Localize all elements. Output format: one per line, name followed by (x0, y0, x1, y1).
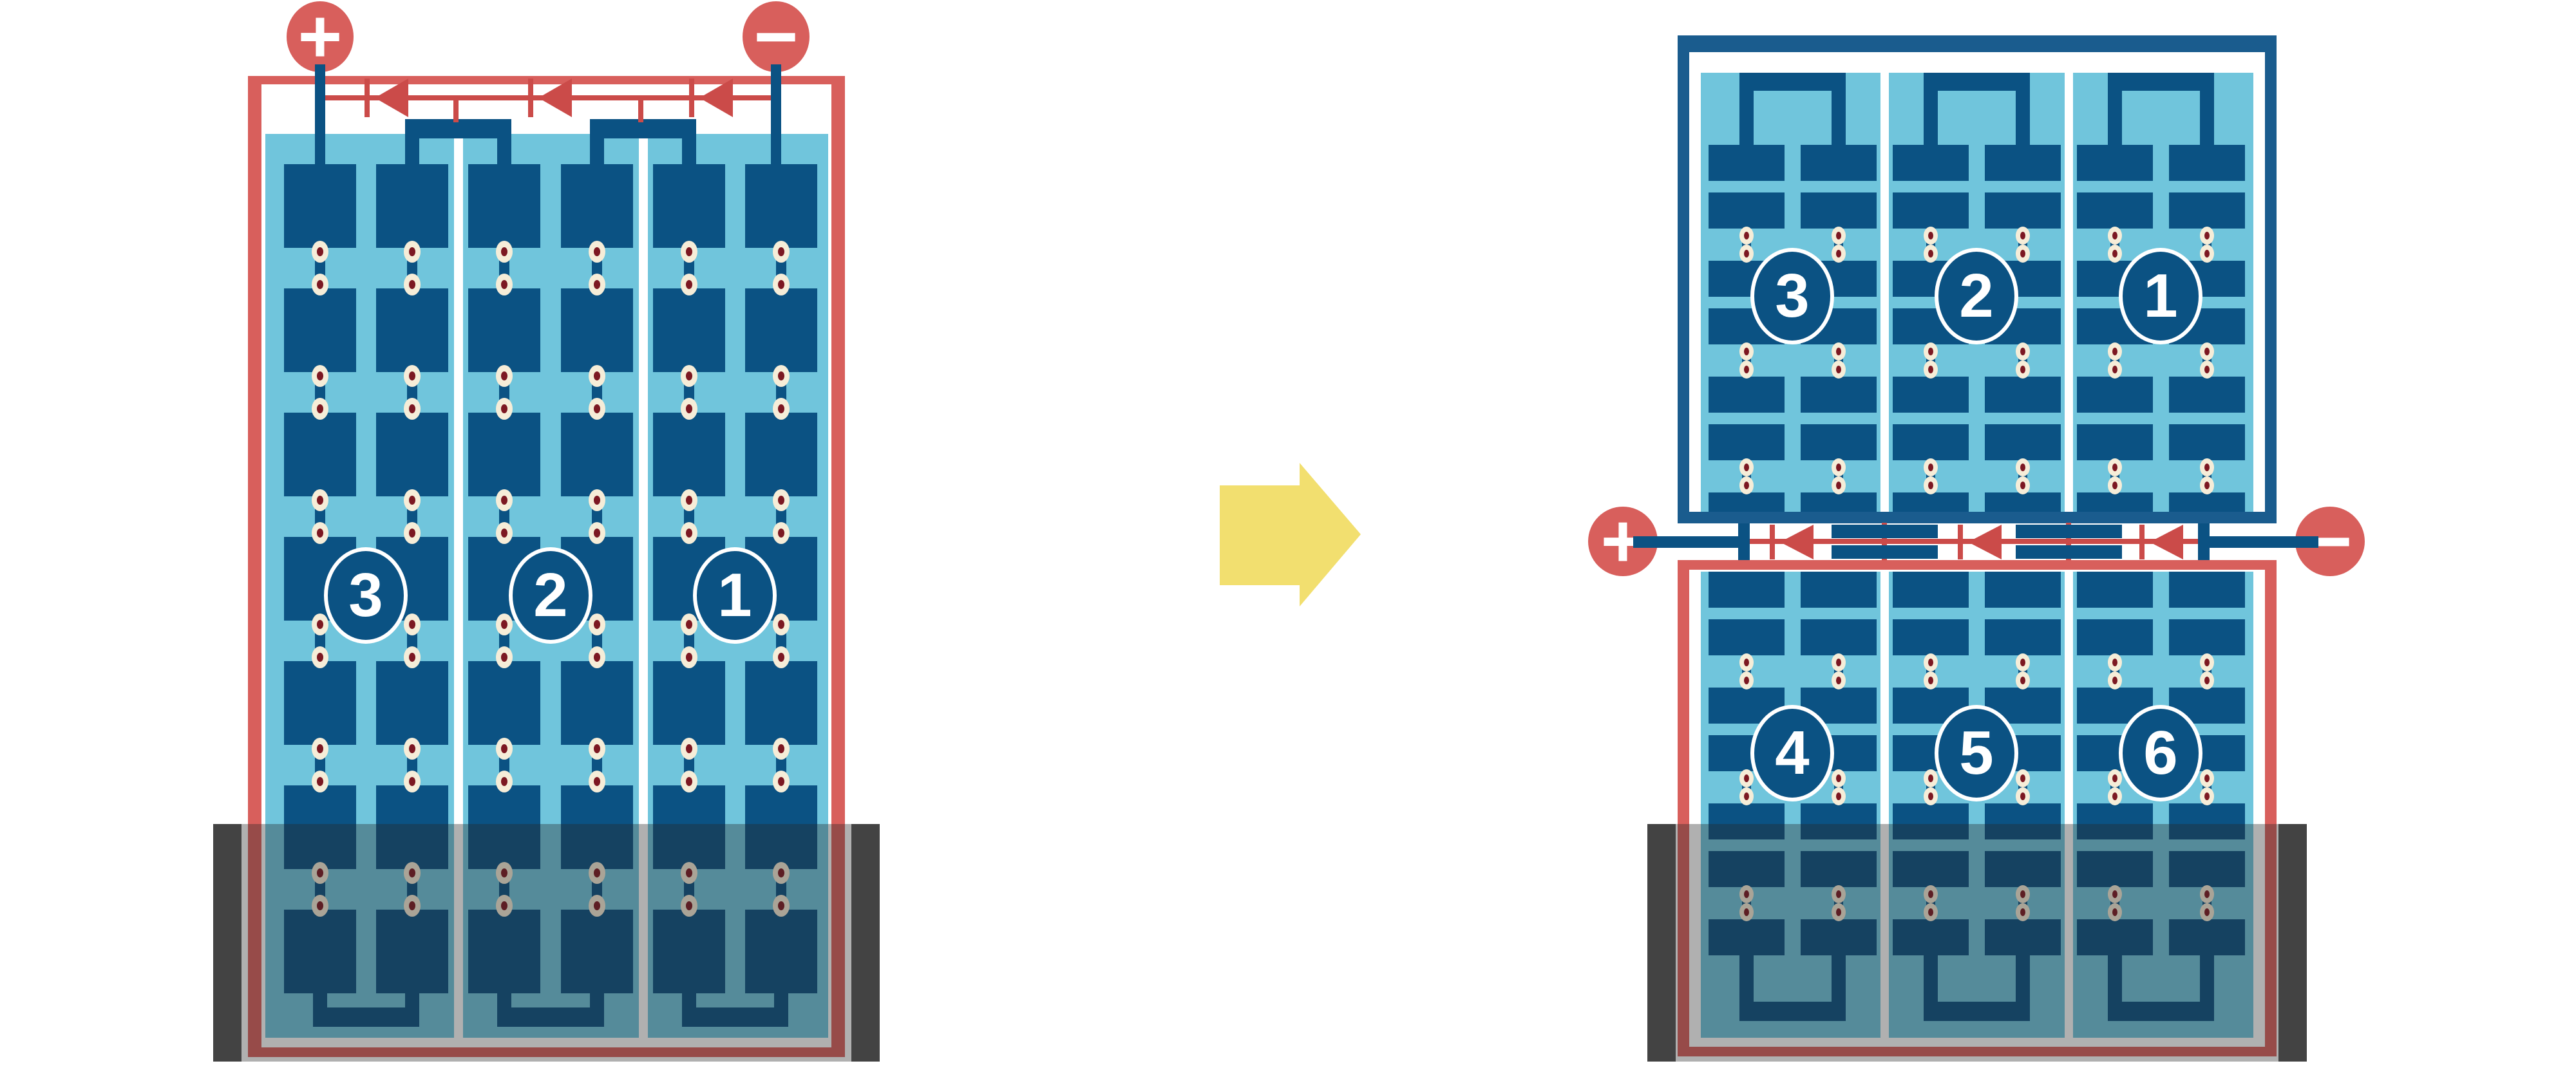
string-number-badge: 2 (1935, 248, 2018, 344)
plus-icon: + (298, 0, 343, 75)
bypass-diode-icon (699, 79, 733, 117)
string-bridge-tab (1832, 545, 1938, 559)
arrow-right-icon (1220, 485, 1300, 585)
string-number: 2 (1959, 261, 1993, 332)
string-number: 1 (717, 560, 752, 631)
shade-end-cap (851, 824, 880, 1062)
string-number: 4 (1775, 718, 1809, 789)
negative-lead (2202, 536, 2318, 548)
negative-terminal: − (743, 1, 810, 72)
solar-module-shading-diagram: + − 3 2 1 (0, 0, 2576, 1068)
string-number-badge: 2 (509, 547, 592, 644)
string-number-badge: 5 (1935, 705, 2018, 801)
string-bridge-tab (2016, 525, 2122, 538)
lead-stub (2198, 523, 2210, 560)
bypass-diode-icon (1780, 525, 1814, 559)
negative-lead (771, 64, 781, 164)
minus-icon: − (754, 0, 799, 75)
diode-cathode-bar (528, 79, 533, 117)
diode-tap-wire (638, 97, 643, 122)
diode-tap-wire (453, 97, 459, 122)
diode-cathode-bar (2139, 525, 2145, 559)
string-number: 3 (348, 560, 383, 631)
string-number: 2 (533, 560, 567, 631)
shade-end-cap (1647, 824, 1676, 1062)
shade-overlay (1676, 824, 2278, 1062)
string-number: 1 (2143, 261, 2177, 332)
diode-cathode-bar (365, 79, 370, 117)
positive-lead (315, 64, 325, 164)
bypass-diode-icon (1968, 525, 2002, 559)
diode-cathode-bar (689, 79, 694, 117)
diode-cathode-bar (1770, 525, 1775, 559)
shade-overlay (241, 824, 851, 1062)
string-number-badge: 4 (1750, 705, 1834, 801)
string-number: 6 (2143, 718, 2177, 789)
shade-end-cap (213, 824, 241, 1062)
shade-end-cap (2278, 824, 2307, 1062)
arrow-right-icon (1300, 463, 1361, 606)
string-number: 3 (1775, 261, 1809, 332)
bypass-diode-icon (538, 79, 572, 117)
lead-stub (1738, 523, 1750, 560)
string-bridge-tab (2016, 545, 2122, 559)
diode-cathode-bar (1958, 525, 1963, 559)
string-bridge-tab (1832, 525, 1938, 538)
bypass-diode-icon (375, 79, 408, 117)
string-number-badge: 1 (2119, 248, 2202, 344)
string-number-badge: 3 (324, 547, 408, 644)
string-number-badge: 3 (1750, 248, 1834, 344)
string-number: 5 (1959, 718, 1993, 789)
positive-lead (1633, 536, 1749, 548)
positive-terminal: + (287, 1, 354, 72)
bypass-diode-icon (2150, 525, 2183, 559)
string-number-badge: 1 (693, 547, 777, 644)
string-number-badge: 6 (2119, 705, 2202, 801)
